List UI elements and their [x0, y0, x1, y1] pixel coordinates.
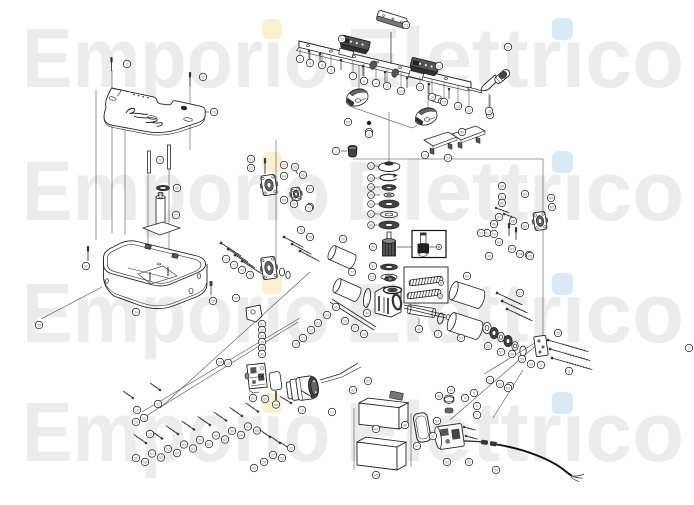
svg-text:42: 42 — [369, 165, 373, 169]
svg-text:23: 23 — [404, 24, 408, 28]
svg-text:10: 10 — [340, 38, 344, 42]
svg-text:56: 56 — [486, 345, 490, 349]
svg-text:87: 87 — [497, 216, 501, 220]
svg-text:24: 24 — [446, 157, 450, 161]
svg-text:89: 89 — [523, 225, 527, 229]
svg-text:96: 96 — [487, 255, 491, 259]
svg-text:61: 61 — [488, 379, 492, 383]
svg-text:70: 70 — [292, 203, 296, 207]
svg-text:54: 54 — [494, 469, 498, 473]
svg-text:75: 75 — [248, 274, 252, 278]
svg-text:52: 52 — [166, 448, 170, 452]
svg-text:83: 83 — [523, 193, 527, 197]
svg-text:5: 5 — [321, 64, 323, 68]
svg-text:97: 97 — [479, 232, 483, 236]
svg-text:53: 53 — [467, 461, 471, 465]
svg-text:19: 19 — [212, 111, 216, 115]
svg-text:8: 8 — [363, 80, 365, 84]
svg-text:11: 11 — [142, 417, 146, 421]
svg-text:88: 88 — [511, 220, 515, 224]
svg-text:Emporıo: Emporıo — [22, 11, 330, 105]
svg-text:26: 26 — [262, 461, 266, 465]
svg-text:31: 31 — [260, 323, 264, 327]
svg-text:6: 6 — [476, 405, 478, 409]
svg-text:43: 43 — [366, 380, 370, 384]
svg-text:65: 65 — [263, 398, 267, 402]
svg-text:34: 34 — [260, 341, 264, 345]
svg-text:27: 27 — [271, 454, 275, 458]
svg-text:29: 29 — [371, 246, 375, 250]
svg-text:78: 78 — [299, 229, 303, 233]
svg-text:51: 51 — [150, 452, 154, 456]
svg-text:61: 61 — [249, 158, 253, 162]
svg-text:37: 37 — [518, 292, 522, 296]
svg-text:22: 22 — [309, 329, 313, 333]
svg-text:69: 69 — [282, 199, 286, 203]
svg-text:14: 14 — [430, 96, 434, 100]
svg-text:57: 57 — [499, 351, 503, 355]
svg-text:34: 34 — [134, 311, 138, 315]
svg-text:17: 17 — [467, 109, 471, 113]
svg-text:77: 77 — [350, 271, 354, 275]
svg-text:82: 82 — [500, 202, 504, 206]
svg-text:73: 73 — [232, 264, 236, 268]
svg-text:52: 52 — [445, 461, 449, 465]
svg-text:61: 61 — [191, 447, 195, 451]
svg-text:45: 45 — [374, 474, 378, 478]
svg-text:18: 18 — [226, 362, 230, 366]
svg-text:29: 29 — [289, 447, 293, 451]
svg-text:48: 48 — [369, 224, 373, 228]
svg-text:15: 15 — [442, 101, 446, 105]
svg-text:93: 93 — [510, 248, 514, 252]
svg-text:20: 20 — [506, 46, 510, 50]
svg-text:11: 11 — [385, 85, 389, 89]
svg-text:33: 33 — [260, 335, 264, 339]
svg-text:16: 16 — [456, 105, 460, 109]
svg-text:2: 2 — [688, 347, 690, 351]
svg-text:63: 63 — [282, 164, 286, 168]
svg-text:40: 40 — [365, 312, 369, 316]
svg-text:72: 72 — [224, 258, 228, 262]
svg-text:48: 48 — [437, 395, 441, 399]
svg-text:30: 30 — [175, 187, 179, 191]
svg-text:44: 44 — [369, 186, 373, 190]
svg-text:4: 4 — [309, 62, 311, 66]
svg-text:9: 9 — [375, 82, 377, 86]
svg-text:47: 47 — [369, 213, 373, 217]
svg-text:27: 27 — [174, 214, 178, 218]
svg-text:2: 2 — [202, 76, 204, 80]
svg-text:2: 2 — [368, 133, 370, 137]
svg-text:9: 9 — [540, 364, 542, 368]
svg-text:21: 21 — [301, 337, 305, 341]
svg-text:54: 54 — [198, 439, 202, 443]
svg-text:3: 3 — [299, 58, 301, 62]
svg-text:46: 46 — [369, 203, 373, 207]
svg-text:60: 60 — [175, 452, 179, 456]
svg-text:13: 13 — [418, 86, 422, 90]
svg-text:41: 41 — [417, 328, 421, 332]
svg-text:90: 90 — [492, 233, 496, 237]
svg-text:59: 59 — [520, 358, 524, 362]
svg-text:64: 64 — [282, 175, 286, 179]
svg-text:45: 45 — [369, 194, 373, 198]
svg-text:16: 16 — [300, 409, 304, 413]
svg-text:91: 91 — [485, 232, 489, 236]
svg-text:17: 17 — [330, 411, 334, 415]
svg-text:36: 36 — [260, 353, 264, 357]
svg-text:6: 6 — [330, 69, 332, 73]
svg-text:51: 51 — [431, 435, 435, 439]
svg-text:39: 39 — [556, 332, 560, 336]
svg-text:35: 35 — [37, 324, 41, 328]
svg-text:7: 7 — [352, 75, 354, 79]
svg-text:13: 13 — [148, 433, 152, 437]
svg-text:95: 95 — [528, 255, 532, 259]
svg-text:56: 56 — [230, 430, 234, 434]
svg-text:36: 36 — [460, 131, 464, 135]
svg-text:4: 4 — [464, 397, 466, 401]
svg-text:12: 12 — [156, 403, 160, 407]
svg-text:35: 35 — [260, 347, 264, 351]
svg-text:28: 28 — [280, 457, 284, 461]
svg-text:42: 42 — [351, 389, 355, 393]
svg-text:58: 58 — [143, 461, 147, 465]
svg-text:50: 50 — [435, 420, 439, 424]
svg-text:8: 8 — [568, 370, 570, 374]
svg-text:5: 5 — [473, 392, 475, 396]
svg-text:65: 65 — [255, 429, 259, 433]
svg-text:71: 71 — [307, 207, 311, 211]
svg-text:49: 49 — [449, 389, 453, 393]
svg-text:57: 57 — [246, 425, 250, 429]
svg-text:92: 92 — [497, 241, 501, 245]
svg-text:54: 54 — [465, 275, 469, 279]
svg-text:23: 23 — [316, 322, 320, 326]
svg-text:10: 10 — [134, 421, 138, 425]
svg-text:24: 24 — [325, 314, 329, 318]
svg-text:1: 1 — [335, 150, 337, 154]
svg-text:26: 26 — [343, 320, 347, 324]
svg-text:62: 62 — [498, 383, 502, 387]
svg-text:50: 50 — [134, 457, 138, 461]
svg-text:62: 62 — [207, 443, 211, 447]
svg-text:74: 74 — [240, 269, 244, 273]
svg-text:79: 79 — [308, 236, 312, 240]
svg-text:66: 66 — [274, 403, 278, 407]
svg-text:64: 64 — [251, 397, 255, 401]
svg-text:25: 25 — [334, 306, 338, 310]
svg-text:21: 21 — [437, 65, 441, 69]
svg-text:2: 2 — [126, 63, 128, 67]
svg-text:47: 47 — [415, 445, 419, 449]
svg-text:20: 20 — [294, 343, 298, 347]
svg-text:67: 67 — [308, 188, 312, 192]
svg-text:63: 63 — [223, 438, 227, 442]
svg-text:86: 86 — [492, 223, 496, 227]
svg-text:44: 44 — [374, 428, 378, 432]
svg-text:51: 51 — [371, 265, 375, 269]
svg-text:12: 12 — [399, 90, 403, 94]
svg-text:81: 81 — [500, 196, 504, 200]
svg-text:7: 7 — [476, 414, 478, 418]
svg-text:52: 52 — [370, 276, 374, 280]
svg-text:59: 59 — [159, 456, 163, 460]
svg-text:58: 58 — [510, 353, 514, 357]
svg-text:46: 46 — [403, 424, 407, 428]
svg-text:14: 14 — [135, 409, 139, 413]
svg-text:22: 22 — [423, 154, 427, 158]
svg-text:66: 66 — [301, 174, 305, 178]
svg-text:80: 80 — [500, 185, 504, 189]
svg-text:76: 76 — [341, 238, 345, 242]
svg-text:32: 32 — [260, 329, 264, 333]
svg-text:85: 85 — [550, 206, 554, 210]
svg-text:28: 28 — [362, 333, 366, 337]
svg-text:55: 55 — [506, 387, 510, 391]
svg-text:55: 55 — [459, 337, 463, 341]
svg-text:43: 43 — [369, 177, 373, 181]
svg-text:30: 30 — [234, 297, 238, 301]
svg-text:64: 64 — [239, 434, 243, 438]
svg-text:53: 53 — [182, 443, 186, 447]
svg-text:36: 36 — [211, 300, 215, 304]
svg-text:3: 3 — [437, 333, 439, 337]
svg-text:60: 60 — [529, 363, 533, 367]
svg-text:37: 37 — [84, 265, 88, 269]
svg-text:26: 26 — [346, 121, 350, 125]
svg-text:28: 28 — [158, 159, 162, 163]
svg-text:18: 18 — [487, 110, 491, 114]
svg-text:29: 29 — [218, 361, 222, 365]
svg-text:65: 65 — [293, 166, 297, 170]
svg-text:62: 62 — [249, 167, 253, 171]
svg-text:27: 27 — [353, 327, 357, 331]
svg-text:55: 55 — [214, 434, 218, 438]
svg-text:25: 25 — [252, 467, 256, 471]
svg-text:94: 94 — [518, 253, 522, 257]
svg-text:84: 84 — [549, 197, 553, 201]
